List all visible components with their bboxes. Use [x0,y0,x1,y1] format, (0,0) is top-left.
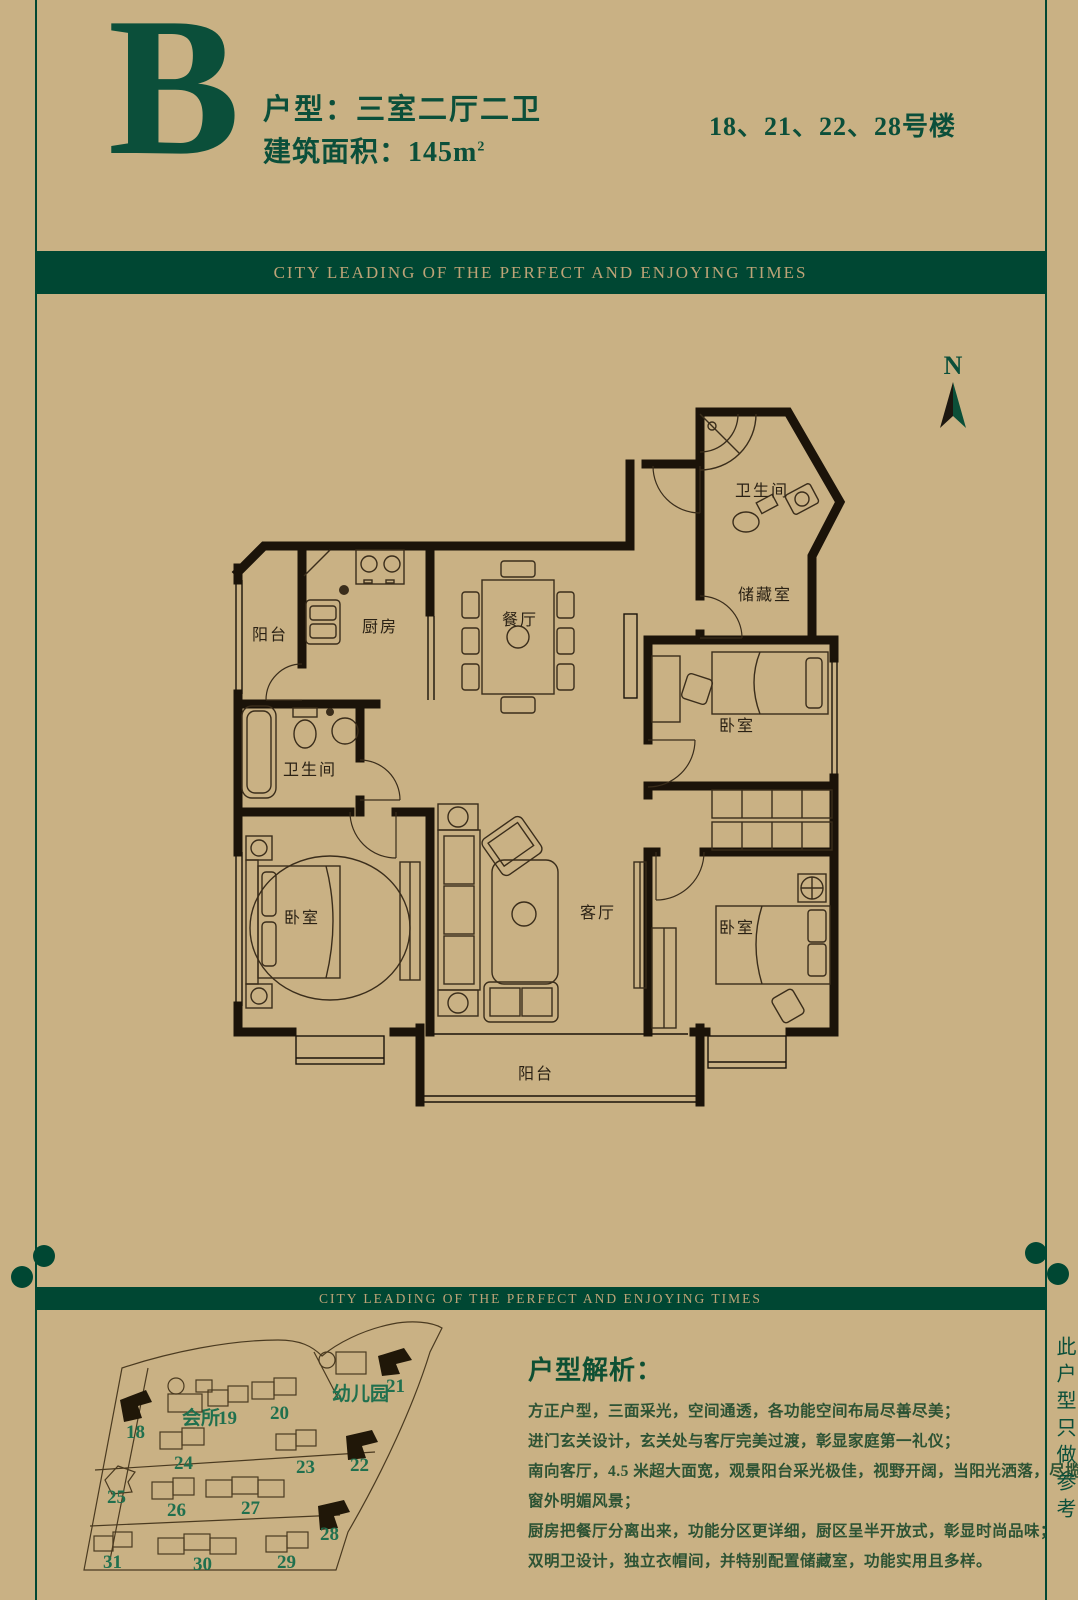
building-18-highlight [120,1390,152,1422]
room-label-dining: 餐厅 [502,611,538,629]
unit-area-text: 建筑面积：145m [263,137,477,168]
right-frame-line [1045,0,1047,1600]
unit-analysis: 户型解析： 方正户型，三面采光，空间通透，各功能空间布局尽善尽美； 进门玄关设计… [528,1350,1028,1577]
north-arrow-left [940,382,953,428]
room-label-bathroom-top: 卫生间 [735,482,789,500]
north-arrow: N [920,340,990,438]
site-label-31: 31 [103,1552,122,1573]
room-label-bedroom-right-top: 卧室 [719,717,755,735]
unit-type-line: 户型：三室二厅二卫 [263,86,542,128]
room-label-storage: 储藏室 [738,586,792,604]
site-map: 18 会所 19 20 幼儿园 21 24 23 22 25 26 27 28 … [70,1315,470,1580]
room-label-balcony-top: 阳台 [252,626,288,644]
unit-area-sup: 2 [477,140,485,155]
room-label-bathroom-left: 卫生间 [283,761,337,779]
brochure-page: { "colors": { "background": "#c9b184", "… [0,0,1078,1600]
ornament-dot [1025,1242,1047,1264]
site-label-26: 26 [167,1500,186,1521]
north-arrow-right [953,382,966,428]
building-numbers: 18、21、22、28号楼 [690,106,975,143]
top-banner: CITY LEADING OF THE PERFECT AND ENJOYING… [36,251,1045,294]
site-label-22: 22 [350,1455,369,1476]
floor-plan: 卫生间 储藏室 阳台 厨房 餐厅 卫生间 卧室 客厅 卧室 卧室 阳台 [170,335,870,1125]
site-label-28: 28 [320,1524,339,1545]
site-buildings [94,1348,412,1554]
plan-doors [266,466,742,900]
analysis-line-2: 进门玄关设计，玄关处与客厅完美过渡，彰显家庭第一礼仪； [528,1427,1028,1457]
site-label-19: 19 [218,1408,237,1429]
ornament-dot [1047,1263,1069,1285]
plan-windows [236,580,837,1102]
site-label-27: 27 [241,1498,261,1519]
analysis-title: 户型解析： [528,1350,1028,1387]
unit-area-line: 建筑面积：145m2 [263,130,485,170]
site-label-30: 30 [193,1554,212,1575]
analysis-line-5: 厨房把餐厅分离出来，功能分区更详细，厨区呈半开放式，彰显时尚品味； [528,1517,1028,1547]
site-label-kindergarten: 幼儿园 [332,1382,389,1405]
room-label-living: 客厅 [580,904,616,922]
site-label-25: 25 [107,1487,126,1508]
top-banner-text: CITY LEADING OF THE PERFECT AND ENJOYING… [274,263,808,283]
ornament-dot [11,1266,33,1288]
analysis-line-4: 窗外明媚风景； [528,1487,1028,1517]
unit-letter: B [108,0,240,186]
analysis-line-6: 双明卫设计，独立衣帽间，并特别配置储藏室，功能实用且多样。 [528,1547,1028,1577]
analysis-line-1: 方正户型，三面采光，空间通透，各功能空间布局尽善尽美； [528,1397,1028,1427]
site-label-21: 21 [386,1376,405,1397]
room-label-bedroom-right-bottom: 卧室 [719,919,755,937]
plan-walls [238,412,840,1102]
site-label-29: 29 [277,1552,296,1573]
analysis-line-3: 南向客厅，4.5 米超大面宽，观景阳台采光极佳，视野开阔，当阳光洒落，尽揽 [528,1457,1028,1487]
site-label-24: 24 [174,1453,194,1474]
room-label-bedroom-left: 卧室 [284,909,320,927]
building-21-highlight [378,1348,412,1376]
site-label-clubhouse: 会所 [182,1406,220,1429]
room-label-kitchen: 厨房 [362,618,398,636]
bottom-banner: CITY LEADING OF THE PERFECT AND ENJOYING… [36,1287,1045,1310]
site-label-23: 23 [296,1457,315,1478]
north-label: N [944,351,963,380]
site-label-20: 20 [270,1403,289,1424]
site-labels: 18 会所 19 20 幼儿园 21 24 23 22 25 26 27 28 … [103,1376,405,1575]
room-label-balcony-bottom: 阳台 [518,1065,554,1083]
site-label-18: 18 [126,1422,145,1443]
side-note: 此户型只做参考 [1050,1336,1078,1525]
ornament-dot [33,1245,55,1267]
left-frame-line [35,0,37,1600]
bottom-banner-text: CITY LEADING OF THE PERFECT AND ENJOYING… [319,1291,762,1307]
